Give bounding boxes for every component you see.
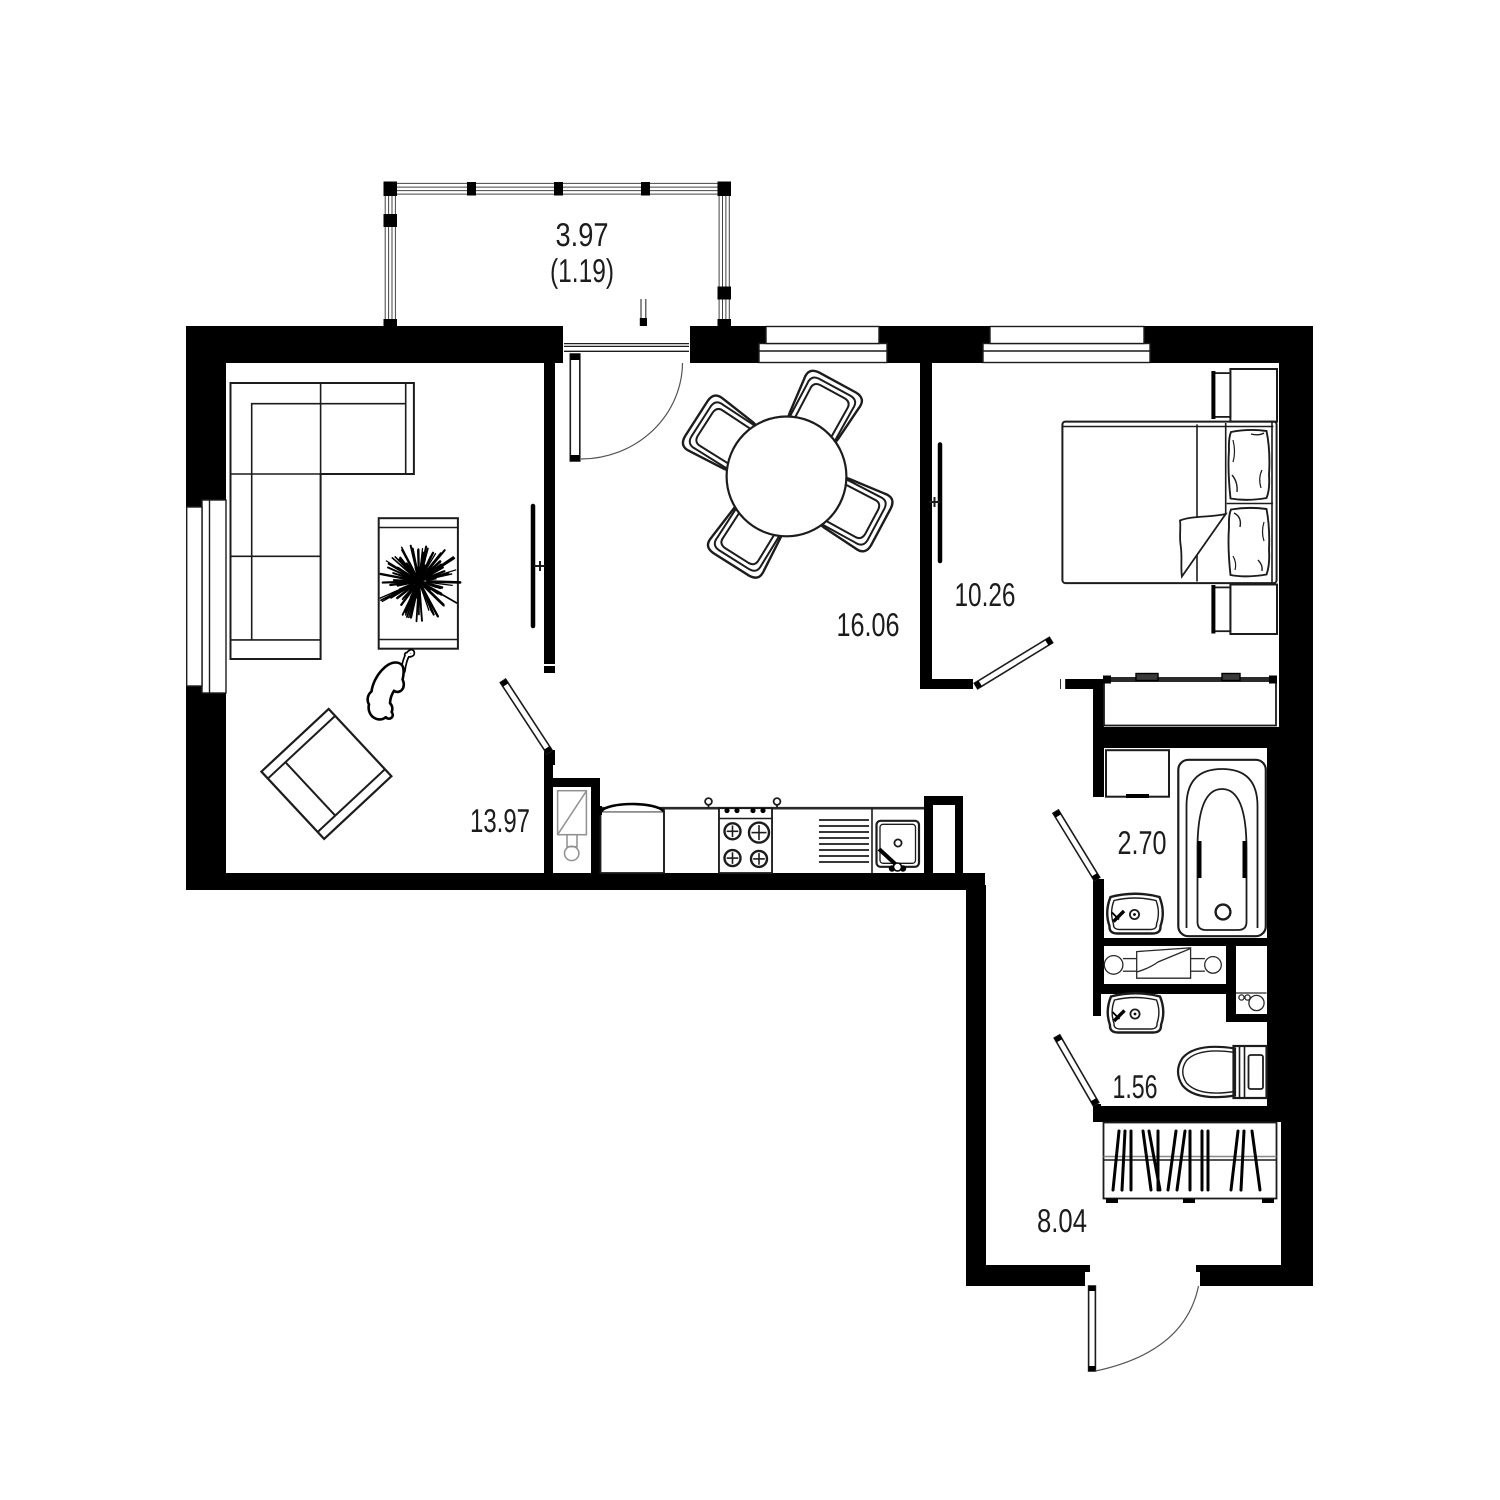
svg-text:16.06: 16.06: [837, 606, 900, 643]
svg-text:13.97: 13.97: [470, 802, 530, 839]
svg-text:1.56: 1.56: [1113, 1068, 1158, 1105]
svg-text:3.97: 3.97: [556, 216, 609, 253]
svg-text:2.70: 2.70: [1118, 824, 1167, 861]
svg-text:10.26: 10.26: [955, 576, 1016, 613]
svg-text:(1.19): (1.19): [550, 252, 614, 289]
svg-text:8.04: 8.04: [1037, 1202, 1087, 1239]
